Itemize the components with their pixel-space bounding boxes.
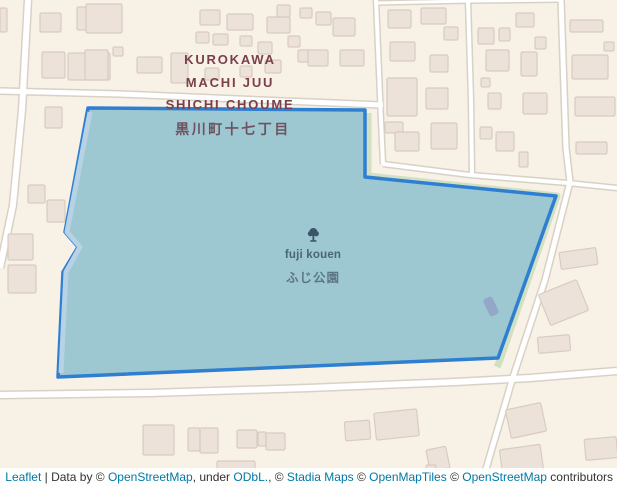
building [8,265,36,293]
building [575,97,615,116]
building [316,12,331,25]
building [171,53,188,83]
building [570,20,603,32]
building [266,433,285,450]
building [431,123,457,149]
attribution-copyright-2: © [447,470,463,484]
building [45,107,62,128]
building [288,36,300,47]
building [344,420,370,441]
building [519,152,528,167]
map-viewport[interactable]: KUROKAWA MACHI JUU SHICHI CHOUME 黒川町十七丁目… [0,0,617,486]
building [213,34,228,45]
leaflet-link[interactable]: Leaflet [5,470,41,484]
building [308,50,328,66]
building [387,78,417,116]
building [584,437,617,461]
building [8,234,33,260]
building [188,428,200,451]
building [240,36,252,46]
building [480,127,492,139]
stadia-maps-link[interactable]: Stadia Maps [287,470,354,484]
building [426,88,448,109]
building [395,132,419,151]
attribution-contributors: contributors [547,470,613,484]
building [340,50,364,66]
building [85,50,108,80]
building [28,185,45,203]
building [267,17,290,33]
building [444,27,458,40]
building [40,13,61,32]
building [300,8,312,18]
building [523,93,547,114]
building [499,28,510,41]
building [237,430,257,448]
building [265,60,281,73]
building [200,10,220,25]
odbl-link[interactable]: ODbL. [233,470,268,484]
building [421,8,446,24]
building [277,5,290,17]
building [481,78,490,87]
building [572,55,608,79]
attribution-data-by: Data by © [51,470,108,484]
building [537,335,570,354]
building [258,432,266,446]
building [576,142,607,154]
building [86,4,122,33]
building [385,122,403,133]
building [516,13,534,27]
building [521,52,537,76]
building [496,132,514,151]
building [374,409,420,440]
osm-link[interactable]: OpenStreetMap [108,470,193,484]
building [47,200,65,222]
attribution-bar: Leaflet | Data by © OpenStreetMap, under… [0,468,617,486]
building [227,14,253,30]
building [143,425,174,455]
building [488,93,501,109]
building [137,57,162,73]
building [196,32,209,43]
building [0,8,7,32]
building [390,42,415,61]
building [604,42,614,51]
building [200,428,218,453]
building [486,50,509,71]
building [478,28,494,44]
attribution-comma-copyright: , © [268,470,287,484]
map-canvas[interactable] [0,0,617,486]
attribution-copyright-1: © [354,470,370,484]
building [42,52,65,78]
building [258,42,272,54]
attribution-separator: | [41,470,51,484]
building [430,55,448,72]
building [388,10,411,28]
attribution-under: , under [193,470,234,484]
building [240,66,252,77]
building [333,18,355,36]
osm-contributors-link[interactable]: OpenStreetMap [462,470,547,484]
building [205,68,219,80]
building [535,37,546,49]
openmaptiles-link[interactable]: OpenMapTiles [369,470,447,484]
building [113,47,123,56]
